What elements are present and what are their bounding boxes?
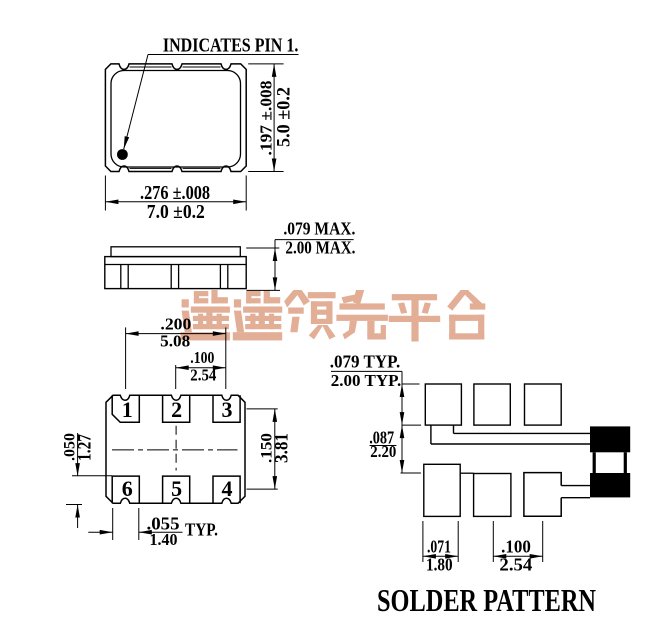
svg-text:4: 4 [222, 476, 233, 501]
svg-text:3: 3 [222, 397, 233, 422]
svg-text:2.54: 2.54 [190, 365, 216, 384]
svg-text:1.80: 1.80 [426, 554, 453, 574]
svg-text:7.0 ±0.2: 7.0 ±0.2 [147, 201, 205, 223]
svg-text:SOLDER PATTERN: SOLDER PATTERN [377, 583, 596, 618]
svg-text:2.20: 2.20 [370, 442, 396, 461]
svg-text:.079 MAX.: .079 MAX. [283, 219, 355, 239]
svg-text:1: 1 [122, 397, 133, 422]
svg-text:INDICATES PIN 1.: INDICATES PIN 1. [163, 35, 299, 57]
svg-text:2.54: 2.54 [499, 554, 532, 574]
svg-text:.079 TYP.: .079 TYP. [330, 352, 401, 372]
svg-text:5.08: 5.08 [160, 332, 190, 351]
svg-text:5.0 ±0.2: 5.0 ±0.2 [274, 87, 294, 147]
svg-text:1.40: 1.40 [150, 530, 178, 549]
svg-text:TYP.: TYP. [185, 519, 218, 539]
svg-text:2: 2 [171, 397, 182, 422]
svg-text:3.81: 3.81 [273, 433, 293, 463]
svg-text:6: 6 [122, 476, 133, 501]
svg-text:.197 ±.008: .197 ±.008 [257, 81, 276, 156]
svg-text:5: 5 [171, 476, 182, 501]
svg-text:.100: .100 [190, 348, 214, 367]
svg-text:2.00 TYP.: 2.00 TYP. [331, 371, 402, 390]
svg-text:2.00 MAX.: 2.00 MAX. [285, 237, 355, 257]
